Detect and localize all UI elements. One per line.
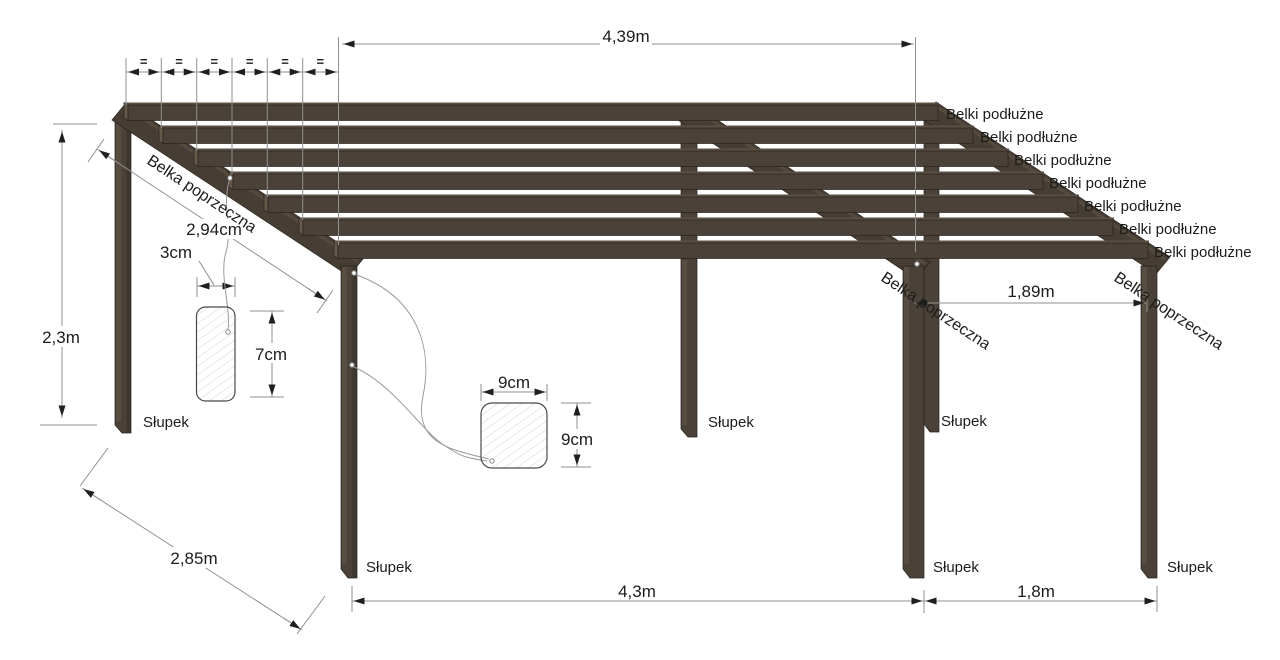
label-transverse-beam-right: Belka poprzeczna bbox=[1111, 269, 1227, 353]
equal-mark: = bbox=[211, 54, 219, 69]
label-longitudinal-beam-4: Belki podłużne bbox=[1049, 175, 1147, 192]
dimension-depth-span bbox=[80, 448, 325, 634]
equal-mark: = bbox=[317, 54, 325, 69]
label-longitudinal-beam-2: Belki podłużne bbox=[980, 129, 1078, 146]
longitudinal-beam-3 bbox=[198, 151, 1008, 167]
dimension-post-height bbox=[40, 124, 97, 425]
leader-dot bbox=[490, 459, 494, 463]
longitudinal-beam-5 bbox=[268, 197, 1078, 213]
label-post-back-left: Słupek bbox=[143, 414, 189, 431]
dim-right-bay-span: 1,89m bbox=[1007, 282, 1054, 301]
label-post-front-left: Słupek bbox=[366, 559, 412, 576]
label-post-back-middle: Słupek bbox=[708, 414, 754, 431]
label-longitudinal-beam-6: Belki podłużne bbox=[1119, 221, 1217, 238]
label-longitudinal-beam-5: Belki podłużne bbox=[1084, 198, 1182, 215]
label-longitudinal-beam-1: Belki podłużne bbox=[946, 106, 1044, 123]
equal-mark: = bbox=[246, 54, 254, 69]
longitudinal-beam-2 bbox=[163, 128, 973, 144]
dim-bottom-main-span: 4,3m bbox=[618, 582, 656, 601]
beam-cross-section bbox=[197, 307, 236, 401]
pergola-diagram: 4,39m 2,3m 2,94cm 3cm 7cm 9cm 9cm 1,89m … bbox=[0, 0, 1280, 660]
dimension-beam-section-3cm bbox=[197, 261, 235, 297]
dim-post-section-width: 9cm bbox=[498, 373, 530, 392]
screw-dot bbox=[352, 271, 356, 275]
longitudinal-beam-4 bbox=[233, 174, 1043, 190]
longitudinal-beam-6 bbox=[303, 220, 1113, 236]
cross-sections bbox=[197, 307, 548, 468]
dim-bottom-side-span: 1,8m bbox=[1017, 582, 1055, 601]
dim-post-height: 2,3m bbox=[42, 328, 80, 347]
leader-dot bbox=[226, 330, 230, 334]
screw-dot bbox=[350, 363, 354, 367]
post-cross-section bbox=[481, 403, 547, 468]
equal-mark: = bbox=[140, 54, 148, 69]
longitudinal-beam-1 bbox=[128, 105, 938, 121]
equal-mark: = bbox=[175, 54, 183, 69]
longitudinal-beams bbox=[124, 103, 1149, 259]
post-labels: Słupek Słupek Słupek Słupek Słupek Słupe… bbox=[143, 413, 1213, 576]
equal-mark: = bbox=[281, 54, 289, 69]
label-post-front-right: Słupek bbox=[1167, 559, 1213, 576]
leader-dot bbox=[228, 176, 232, 180]
label-longitudinal-beam-7: Belki podłużne bbox=[1154, 244, 1252, 261]
label-post-front-middle: Słupek bbox=[933, 559, 979, 576]
label-post-back-right: Słupek bbox=[941, 413, 987, 430]
dim-beam-section-width: 3cm bbox=[160, 243, 192, 262]
dim-depth-span: 2,85m bbox=[170, 549, 217, 568]
dim-post-section-height: 9cm bbox=[561, 430, 593, 449]
longitudinal-beam-7 bbox=[338, 243, 1148, 259]
screw-dot bbox=[915, 262, 919, 266]
drawing-canvas: 4,39m 2,3m 2,94cm 3cm 7cm 9cm 9cm 1,89m … bbox=[0, 0, 1280, 660]
label-longitudinal-beam-3: Belki podłużne bbox=[1014, 152, 1112, 169]
dim-beam-section-height: 7cm bbox=[255, 345, 287, 364]
dim-roof-span-top: 4,39m bbox=[602, 27, 649, 46]
